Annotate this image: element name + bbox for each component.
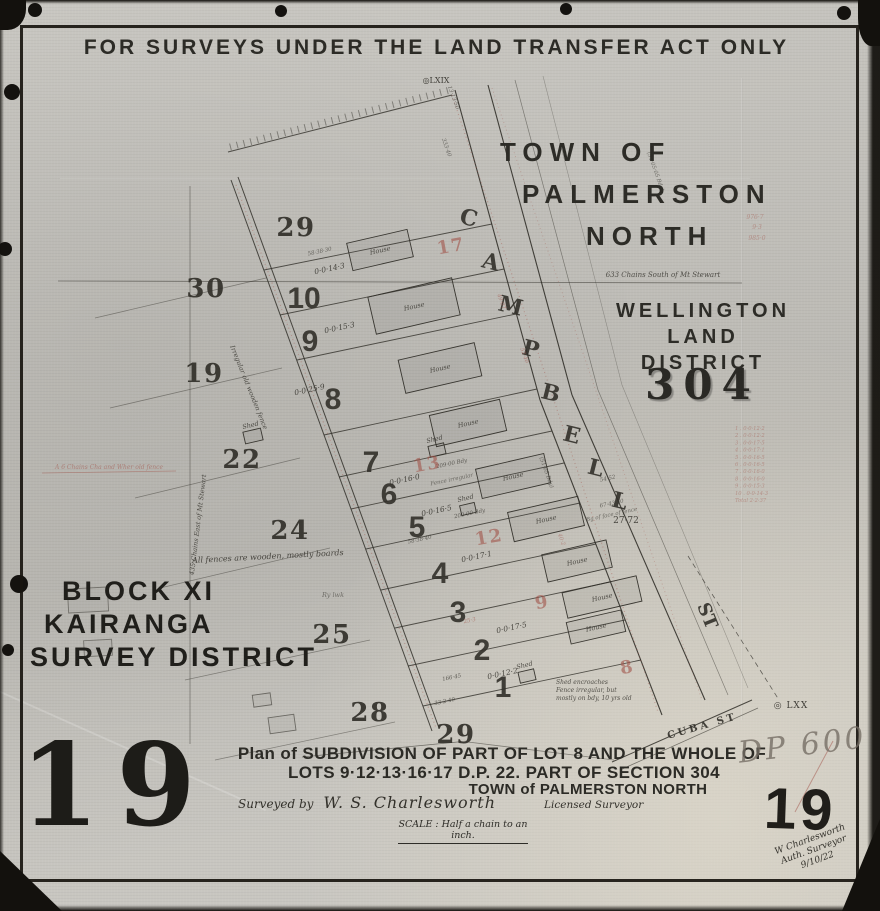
block-title-line: KAIRANGA bbox=[44, 608, 317, 641]
town-title-line: PALMERSTON bbox=[522, 173, 772, 215]
surveyed-by-label: Surveyed by bbox=[238, 797, 313, 811]
scan-edge bbox=[867, 0, 880, 911]
land-district-line: WELLINGTON LAND bbox=[588, 298, 818, 350]
punch-hole bbox=[275, 5, 287, 17]
scale-note: SCALE : Half a chain to an inch. bbox=[398, 819, 528, 844]
block-title: BLOCK XI KAIRANGA SURVEY DISTRICT bbox=[30, 575, 317, 674]
town-title: TOWN OF PALMERSTON NORTH bbox=[500, 131, 772, 257]
sheet-number-left: 19 bbox=[20, 728, 213, 842]
town-title-line: TOWN OF bbox=[500, 131, 772, 173]
surveyor-line: Surveyed by W. S. Charlesworth Licensed … bbox=[238, 793, 643, 812]
scan-edge bbox=[0, 0, 880, 4]
section-number: 304 bbox=[645, 360, 760, 409]
punch-hole bbox=[560, 3, 572, 15]
punch-hole bbox=[28, 3, 42, 17]
town-title-line: NORTH bbox=[586, 215, 772, 257]
plan-title-line2: LOTS 9·12·13·16·17 D.P. 22. PART OF SECT… bbox=[258, 763, 750, 783]
header-title: FOR SURVEYS UNDER THE LAND TRANSFER ACT … bbox=[20, 36, 853, 60]
licensed-surveyor-label: Licensed Surveyor bbox=[544, 799, 643, 811]
block-title-line: SURVEY DISTRICT bbox=[30, 641, 317, 674]
scan-edge bbox=[0, 0, 4, 911]
punch-hole bbox=[4, 84, 20, 100]
scan-edge bbox=[0, 905, 880, 911]
plan-title-line1: Plan of SUBDIVISION OF PART OF LOT 8 AND… bbox=[232, 744, 772, 764]
punch-hole bbox=[837, 6, 851, 20]
block-title-line: BLOCK XI bbox=[62, 575, 317, 608]
surveyor-name: W. S. Charlesworth bbox=[323, 793, 496, 812]
scanned-survey-plan: HouseHouseHouseHouseHouseHouseHouseHouse… bbox=[0, 0, 880, 911]
